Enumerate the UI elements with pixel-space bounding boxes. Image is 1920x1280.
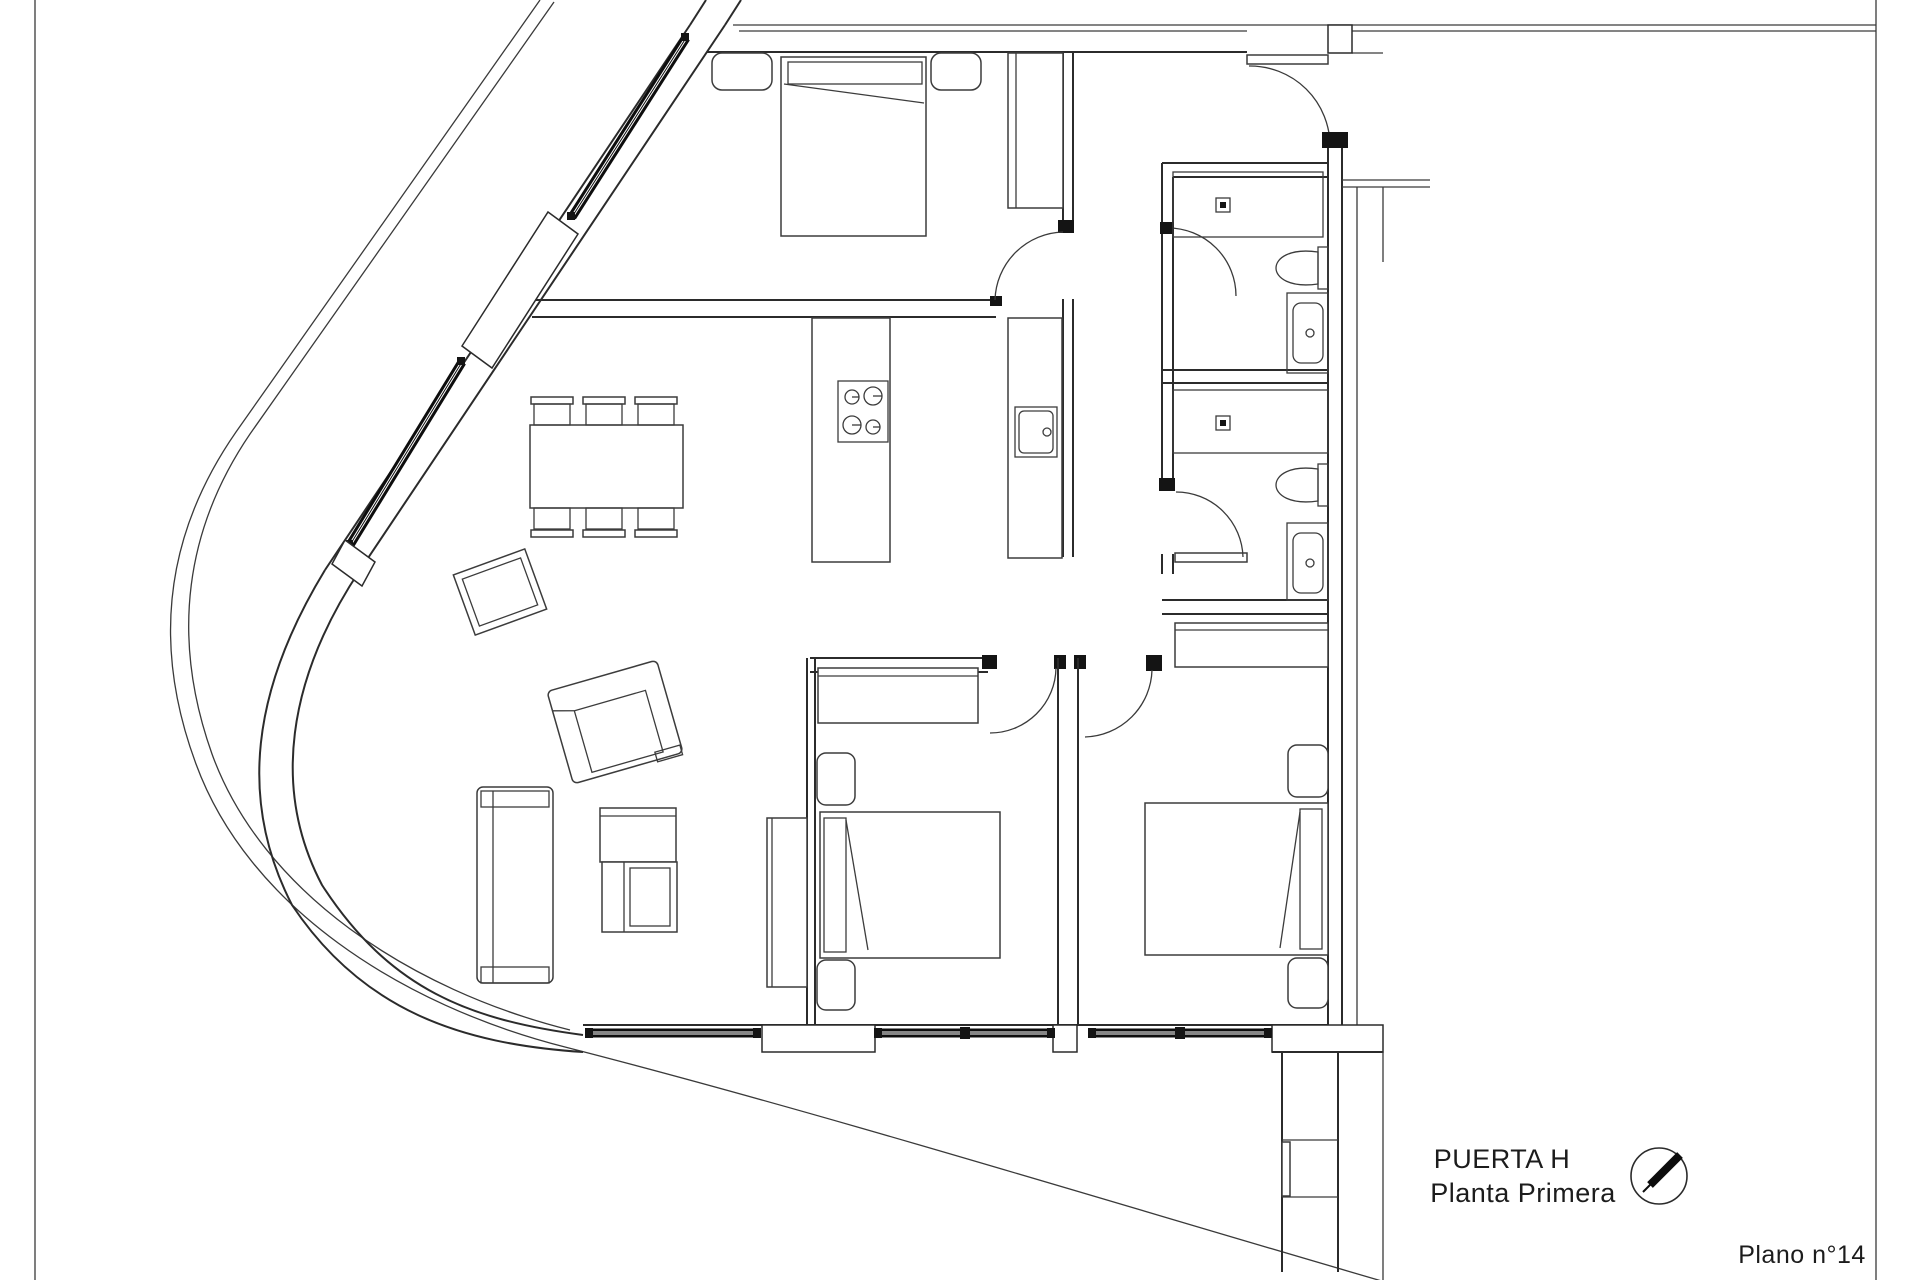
bathroom-2-door [1175, 492, 1247, 562]
washbasin [1287, 293, 1328, 373]
bedroom-2-door [990, 668, 1056, 733]
dining-table [530, 425, 683, 508]
south-window-1 [585, 1028, 761, 1038]
toilet [1276, 247, 1328, 289]
bedroom-3-door [1085, 670, 1152, 737]
sofa [477, 787, 553, 983]
shower-with-drain [1173, 172, 1323, 237]
kitchen-dining [530, 318, 1062, 562]
bathroom-1 [1173, 172, 1328, 373]
faucet-icon [1306, 559, 1314, 567]
nightstand [712, 53, 772, 90]
kitchen-island [812, 318, 890, 562]
sheet-border [35, 0, 1876, 1280]
shower-with-drain [1173, 390, 1328, 453]
facade-end-block [332, 540, 375, 586]
washbasin [1287, 523, 1328, 600]
living-room [453, 549, 807, 987]
facade-window-upper-diagonal [567, 33, 689, 220]
service-shaft [1282, 1052, 1383, 1280]
south-window-2 [874, 1027, 1055, 1039]
nightstand [931, 53, 981, 90]
counter-with-sink [1008, 318, 1062, 558]
tv-cabinet [767, 818, 807, 987]
rotated-side-table [453, 549, 546, 635]
armchair [547, 660, 684, 786]
facade-mullion-block [462, 212, 578, 368]
floor-plan-svg: PUERTA H Planta Primera Plano n°14 [0, 0, 1920, 1280]
floor-label: Planta Primera [1430, 1178, 1616, 1208]
bed [820, 812, 1000, 958]
master-bedroom [712, 53, 1063, 236]
master-bedroom-door [995, 232, 1063, 300]
compass-needle-icon [1631, 1148, 1687, 1204]
wardrobe [818, 668, 978, 723]
sheet-number-label: Plano n°14 [1738, 1241, 1866, 1269]
bedroom-2 [817, 668, 1000, 1010]
nesting-coffee-tables [600, 808, 677, 932]
facade-window-lower-diagonal [345, 357, 465, 548]
bathroom-1-door [1160, 222, 1236, 296]
south-wall [583, 1025, 1383, 1052]
bedroom-3 [1145, 623, 1328, 1008]
south-window-3 [1088, 1027, 1272, 1039]
bed [1145, 803, 1328, 955]
nightstand [1288, 745, 1328, 797]
double-bed [781, 57, 926, 236]
nightstand [817, 753, 855, 805]
east-walls [1328, 148, 1430, 1052]
toilet [1276, 464, 1328, 506]
drawing-sheet: PUERTA H Planta Primera Plano n°14 [0, 0, 1920, 1280]
nightstand [1288, 958, 1328, 1008]
wardrobe [1008, 53, 1063, 208]
nightstand [817, 960, 855, 1010]
unit-label: PUERTA H [1434, 1144, 1571, 1174]
entry-door [1247, 25, 1352, 148]
duct-hatch [1282, 1142, 1290, 1196]
faucet-icon [1306, 329, 1314, 337]
wardrobe [1175, 623, 1328, 667]
north-wall [707, 25, 1876, 53]
